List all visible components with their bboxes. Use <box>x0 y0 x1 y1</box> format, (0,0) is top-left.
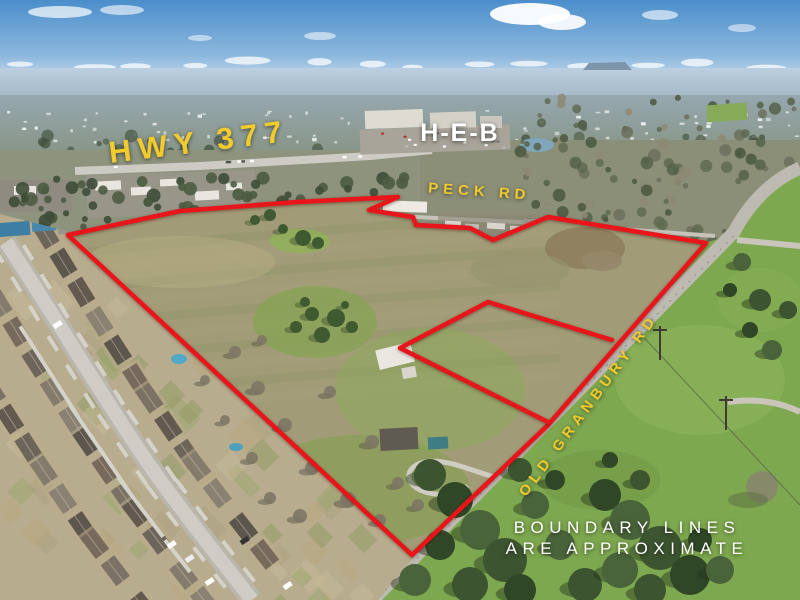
scrub-tree <box>675 95 681 101</box>
tree <box>414 459 446 491</box>
distant-green-field <box>706 103 747 123</box>
tree <box>327 309 345 327</box>
house-roof <box>379 427 418 451</box>
tree <box>86 178 97 189</box>
building-speck <box>795 135 799 137</box>
tree <box>346 321 358 333</box>
tree <box>749 289 771 311</box>
building-speck <box>53 140 57 143</box>
building-speck <box>680 123 685 125</box>
tree <box>61 197 66 202</box>
tree <box>66 181 79 194</box>
building-speck <box>695 115 697 117</box>
tree <box>300 297 310 307</box>
tree <box>16 182 30 196</box>
building-speck <box>94 141 97 143</box>
tree-shadow <box>728 492 768 508</box>
scrub-tree <box>656 177 661 182</box>
building-speck <box>485 110 489 112</box>
scrub-tree <box>524 141 530 147</box>
scrub-tree <box>586 137 597 148</box>
bare-tree <box>229 346 241 358</box>
tree <box>369 188 378 197</box>
scrub-tree <box>545 98 551 104</box>
tree <box>779 301 797 319</box>
scrub-tree <box>553 189 566 202</box>
building-speck <box>766 118 771 121</box>
cloud <box>225 56 271 64</box>
scrub-tree <box>572 104 581 113</box>
bare-tree <box>246 452 258 464</box>
tree <box>396 177 408 189</box>
tree <box>112 191 125 204</box>
tree <box>230 181 237 188</box>
tree <box>9 196 20 207</box>
tree <box>251 180 260 189</box>
building-speck <box>786 111 789 113</box>
building-speck <box>645 132 648 134</box>
scrub-tree <box>578 203 587 212</box>
tree <box>178 183 186 191</box>
scrub-tree <box>560 134 568 142</box>
scrub-tree <box>582 212 588 218</box>
bare-tree <box>200 375 210 385</box>
car <box>414 144 417 146</box>
scrub-tree <box>641 157 654 170</box>
tree <box>21 195 29 203</box>
scrub-tree <box>769 103 781 115</box>
tree <box>290 321 302 333</box>
scrub-tree <box>557 206 569 218</box>
building-speck <box>268 111 272 113</box>
scrub-tree <box>610 175 618 183</box>
building-speck <box>595 127 599 130</box>
building-speck <box>759 126 763 129</box>
scrub-tree <box>552 137 557 142</box>
scrub-tree <box>757 102 764 109</box>
building-speck <box>312 138 317 141</box>
scrub-tree <box>613 209 625 221</box>
tree <box>706 556 734 584</box>
scrub-tree <box>537 113 542 118</box>
cloud <box>183 63 207 69</box>
disclaimer-line2: ARE APPROXIMATE <box>506 539 749 558</box>
scrub-tree <box>537 118 546 127</box>
scrub-tree <box>570 157 582 169</box>
tree <box>89 201 98 210</box>
tree <box>314 327 330 343</box>
scrub-tree <box>725 100 729 104</box>
scrub-tree <box>544 202 550 208</box>
tree <box>38 206 43 211</box>
tree <box>98 185 107 194</box>
bare-tree <box>251 381 265 395</box>
building-speck <box>313 135 316 137</box>
scrub-tree <box>558 143 568 153</box>
tree <box>63 210 69 216</box>
building-speck <box>630 137 634 140</box>
building-speck <box>696 122 699 124</box>
scrub-tree <box>650 99 657 106</box>
tree <box>312 237 324 249</box>
building-speck <box>82 126 86 128</box>
building-speck <box>707 122 712 124</box>
building-speck <box>22 128 26 130</box>
disclaimer-line1: BOUNDARY LINES <box>514 518 741 537</box>
building-speck <box>340 117 343 119</box>
cloud <box>359 61 385 68</box>
cloud <box>307 58 331 65</box>
scrub-tree <box>621 126 633 138</box>
building-speck <box>348 122 350 125</box>
car <box>250 160 254 162</box>
building-speck <box>198 115 202 118</box>
scrub-tree <box>746 154 757 165</box>
building-speck <box>144 113 147 116</box>
scrub-tree <box>721 161 733 173</box>
tree <box>742 322 758 338</box>
tree <box>206 172 217 183</box>
scene-canvas: HWY 377 H-E-B PECK RD OLD GRANBURY RD BO… <box>0 0 800 600</box>
building-speck <box>758 119 762 122</box>
tree <box>82 216 88 222</box>
heb-label: H-E-B <box>420 119 499 147</box>
scrub-tree <box>557 94 566 103</box>
scrub-tree <box>605 167 611 173</box>
tree <box>250 215 260 225</box>
scrub-tree <box>673 175 684 186</box>
building-speck <box>84 119 87 122</box>
scrub-tree <box>736 151 741 156</box>
building-speck <box>289 115 291 118</box>
scrub-tree <box>515 146 527 158</box>
car <box>237 160 241 162</box>
car <box>381 133 384 135</box>
tree <box>241 191 252 202</box>
tree <box>218 173 229 184</box>
scrub-tree <box>625 108 632 115</box>
building-speck <box>555 132 560 135</box>
scrub-tree <box>544 180 551 187</box>
tree <box>96 141 101 146</box>
car <box>503 146 506 148</box>
teal-roof-building <box>428 436 449 449</box>
building-speck <box>524 130 528 132</box>
bare-tree <box>392 477 404 489</box>
tree <box>602 452 618 468</box>
scrub-tree <box>534 143 542 151</box>
tree <box>82 188 91 197</box>
scrub-tree <box>605 210 610 215</box>
scrub-tree <box>719 144 731 156</box>
scrub-tree <box>521 140 525 144</box>
building-speck <box>35 126 38 129</box>
building-speck <box>96 112 98 114</box>
scrub-tree <box>531 200 540 209</box>
bare-tree <box>257 335 267 345</box>
building-speck <box>70 129 72 132</box>
car <box>343 156 347 158</box>
tree <box>145 198 153 206</box>
scrub-tree <box>756 137 766 147</box>
scrub-tree <box>741 129 750 138</box>
tree <box>53 176 60 183</box>
scrub-tree <box>665 209 672 216</box>
building-speck <box>296 141 298 144</box>
scrub-tree <box>667 163 679 175</box>
tree <box>137 176 148 187</box>
tree <box>278 224 288 234</box>
car <box>405 145 408 147</box>
building-speck <box>24 121 28 123</box>
building-speck <box>788 125 790 127</box>
tree <box>44 196 52 204</box>
scrub-tree <box>637 207 647 217</box>
car <box>226 161 230 163</box>
tree <box>38 137 47 146</box>
building-speck <box>124 120 127 122</box>
scrub-tree <box>758 109 767 118</box>
scrub-tree <box>581 125 587 131</box>
car <box>358 155 362 157</box>
scrub-tree <box>573 123 578 128</box>
tree <box>723 283 737 297</box>
car <box>408 139 411 141</box>
scrub-tree <box>654 216 665 227</box>
scrub-tree <box>639 198 648 207</box>
building-speck <box>153 123 157 126</box>
building-speck <box>707 126 711 128</box>
scrub-tree <box>603 217 608 222</box>
scrub-tree <box>641 184 653 196</box>
tree <box>37 183 49 195</box>
scrub-tree <box>787 98 795 106</box>
bare-tree <box>264 492 276 504</box>
bare-tree <box>412 499 424 511</box>
cloud <box>631 63 665 69</box>
scrub-tree <box>632 179 637 184</box>
tree <box>682 133 689 140</box>
scrub-tree <box>596 159 604 167</box>
tree <box>733 253 751 271</box>
scrub-tree <box>658 138 670 150</box>
bare-tree <box>365 435 379 449</box>
tree <box>154 203 161 210</box>
tree <box>305 307 319 321</box>
bare-tree <box>293 509 307 523</box>
tree <box>382 176 395 189</box>
scrub-tree <box>657 127 662 132</box>
building-speck <box>93 128 97 131</box>
tree <box>399 564 431 596</box>
distant-mesa <box>583 62 632 70</box>
tree <box>77 180 85 188</box>
tree <box>315 186 324 195</box>
car <box>241 160 245 162</box>
tree <box>104 216 112 224</box>
tree <box>341 301 349 309</box>
building-speck <box>188 112 191 114</box>
tree <box>630 470 650 490</box>
cloud <box>7 62 33 67</box>
building-speck <box>46 113 51 115</box>
building-speck <box>523 127 526 129</box>
scrub-tree <box>683 183 689 189</box>
cloud <box>681 59 713 67</box>
building-speck <box>576 116 581 119</box>
bare-tree <box>324 386 336 398</box>
tree <box>344 185 352 193</box>
building-speck <box>606 137 609 139</box>
building-speck <box>605 110 610 113</box>
scrub-tree <box>684 114 689 119</box>
cloud <box>465 61 494 67</box>
scrub-tree <box>700 160 712 172</box>
building-speck <box>641 122 646 125</box>
building-speck <box>7 111 10 113</box>
tree <box>264 209 276 221</box>
building-speck <box>596 112 601 114</box>
scrub-tree <box>596 151 604 159</box>
building-speck <box>267 112 270 114</box>
tree <box>762 340 782 360</box>
building-speck <box>334 141 337 143</box>
aerial-photo: HWY 377 H-E-B PECK RD OLD GRANBURY RD BO… <box>0 0 800 600</box>
car <box>404 136 407 138</box>
scrub-tree <box>664 199 669 204</box>
scrub-tree <box>738 170 749 181</box>
scrub-tree <box>697 125 703 131</box>
cloud <box>510 61 548 67</box>
building-speck <box>305 112 308 115</box>
bare-tree <box>220 415 230 425</box>
scrub-tree <box>718 134 726 142</box>
scrub-tree <box>523 166 532 175</box>
scrub-tree <box>792 107 797 112</box>
